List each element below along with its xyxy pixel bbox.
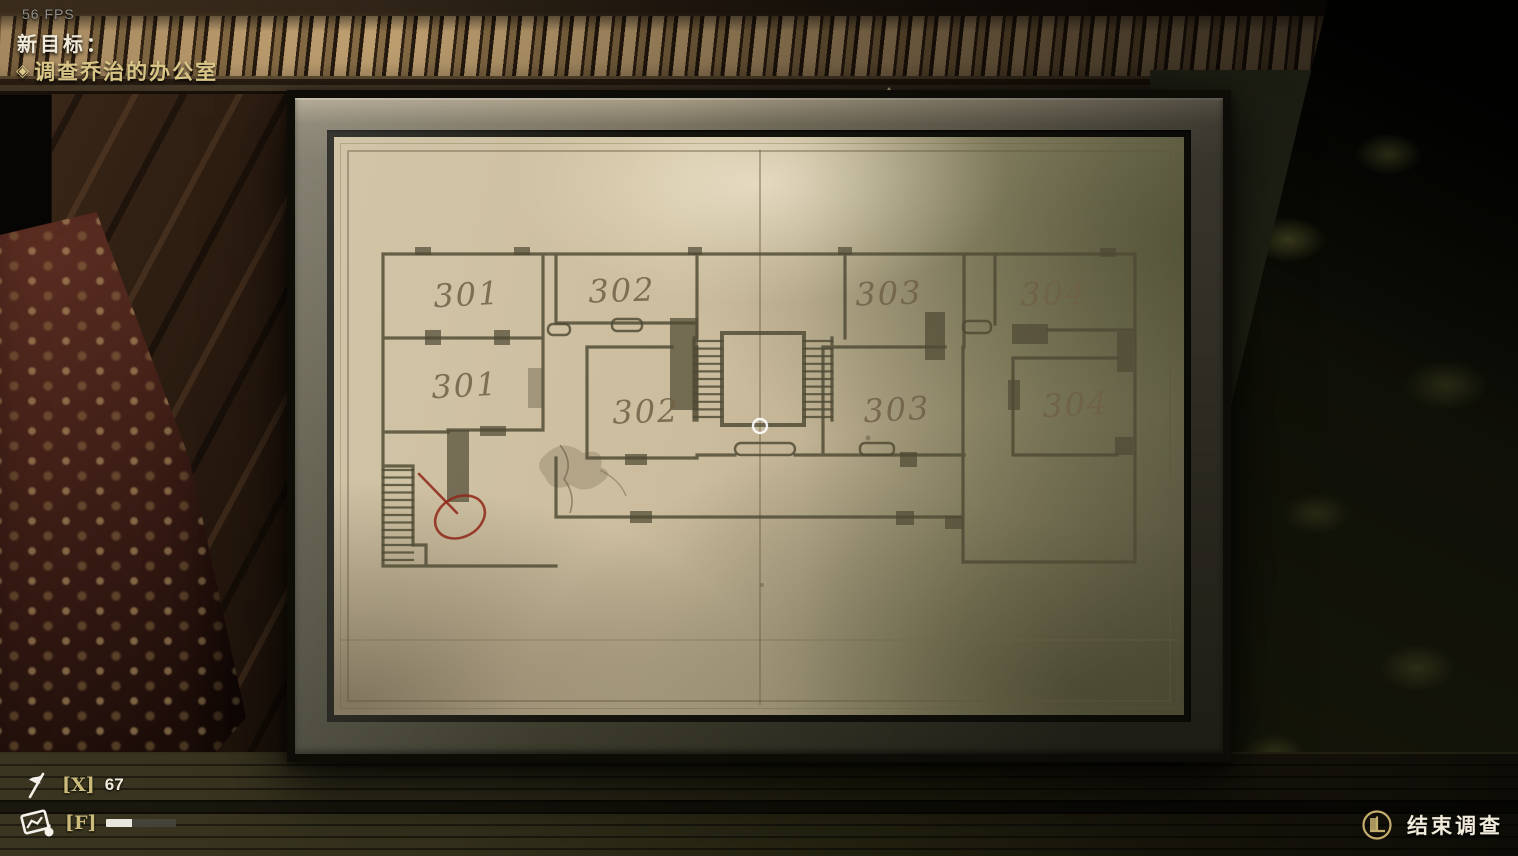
staircase [383, 470, 413, 560]
room-label-301-upper: 301 [432, 274, 501, 315]
room-label-303-upper: 303 [855, 273, 923, 313]
shelf-shadow-band [0, 800, 1518, 814]
stairwell [694, 333, 832, 425]
picture-frame: 301 301 302 302 303 303 304 304 [295, 98, 1223, 754]
room-label-302-lower: 302 [612, 391, 680, 431]
frame-inner-lip: 301 301 302 302 303 303 304 304 [327, 130, 1191, 722]
framed-floorplan-map[interactable]: 301 301 302 302 303 303 304 304 [287, 90, 1231, 762]
floorplan-paper: 301 301 302 302 303 303 304 304 [334, 137, 1184, 715]
aim-reticle [753, 419, 767, 433]
end-investigation-icon [1360, 808, 1394, 842]
room-label-301-lower: 301 [430, 365, 499, 406]
door-markers [548, 319, 991, 455]
room-label-302-upper: 302 [588, 270, 656, 310]
floorplan-drawing: 301 301 302 302 303 303 304 304 [334, 137, 1184, 715]
end-investigation-button[interactable]: 结束调查 [1360, 808, 1503, 842]
end-investigation-label: 结束调查 [1407, 810, 1503, 840]
room-label-303-lower: 303 [862, 389, 931, 430]
room-label-304-upper: 304 [1020, 273, 1088, 313]
game-screen: 301 301 302 302 303 303 304 304 [0, 0, 1518, 856]
paper-stains [539, 436, 871, 588]
room-label-304-lower: 304 [1041, 384, 1110, 425]
wooden-shelf [0, 752, 1518, 856]
